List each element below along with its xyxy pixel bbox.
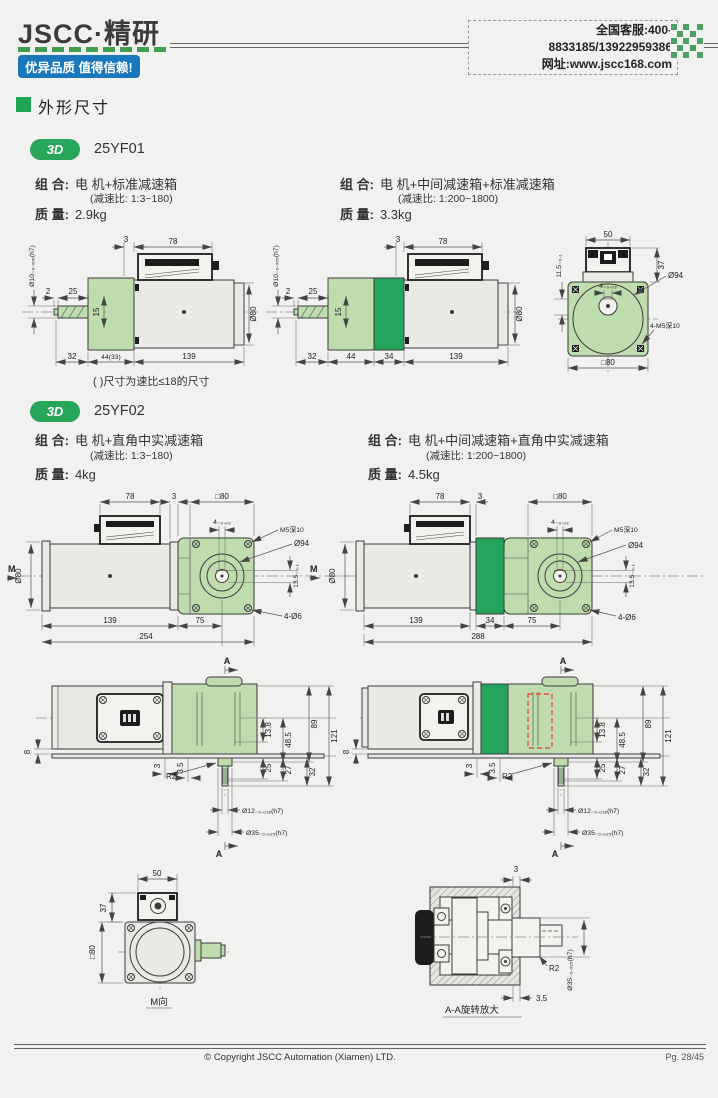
dim-label: 25: [69, 287, 78, 296]
dim-label: □80: [553, 492, 567, 501]
mass-label: 质 量:: [340, 207, 374, 222]
dim-label: 2: [286, 287, 291, 296]
dim-label: Ø10₋₀.₀₀₅(h7): [29, 245, 36, 287]
dim-label: 121: [330, 729, 339, 743]
footer-page-number: Pg. 28/45: [665, 1052, 704, 1062]
combo-value: 电 机+中间减速箱+标准减速箱: [380, 177, 555, 192]
dim-label: 25: [309, 287, 318, 296]
motor-gearbox-body: [22, 254, 258, 350]
service-hotline: 全国客服:400-8833185/13922959386: [474, 22, 672, 56]
output-boss: [218, 758, 232, 766]
dim-label: 4-Ø6: [618, 613, 636, 622]
mass-row: 质 量:2.9kg: [35, 204, 107, 223]
dim-label: 288: [471, 632, 485, 641]
website-link[interactable]: 网址:www.jscc168.com: [474, 56, 672, 73]
dim-label: R2: [166, 772, 177, 781]
dim-label: 8: [23, 749, 32, 754]
dim-label: 50: [604, 230, 613, 239]
drawing-yf01-standard-side: 3 78 2 25 Ø10₋₀.₀₀₅(h7) 15 Ø80 32 44(33)…: [8, 230, 260, 376]
combo-row: 组 合:电 机+中间减速箱+直角中实减速箱: [368, 430, 609, 449]
combo-label: 组 合:: [35, 433, 69, 448]
dim-label: □80: [215, 492, 229, 501]
dim-label: 75: [528, 616, 537, 625]
section-label: A: [224, 656, 231, 666]
mass-value: 2.9kg: [75, 207, 107, 222]
dim-label: 4-M5深10: [650, 321, 680, 330]
drawing-yf02-plan-right: M Ø80 78 3 □80 4₋₀.₀₃ M5深10 Ø94 13.5₋₀.₁…: [306, 486, 716, 652]
dim-label: 139: [182, 352, 196, 361]
mass-value: 3.3kg: [380, 207, 412, 222]
mass-label: 质 量:: [368, 467, 402, 482]
dim-label: 15: [92, 307, 101, 316]
terminal-box: [97, 694, 163, 742]
dim-label: 139: [449, 352, 463, 361]
contact-box: 全国客服:400-8833185/13922959386 网址:www.jscc…: [468, 20, 678, 75]
motor-gearbox-body: [326, 516, 706, 614]
terminal-box: [420, 694, 468, 740]
drawing-m-view: 50 37 □80 M向: [82, 864, 272, 1014]
dim-label: 121: [664, 729, 673, 743]
output-shaft: [538, 554, 582, 598]
drawing-aa-section: 3 R2 3.5 Ø35₋₀.₀₂₅(h7) A-A旋转放大: [398, 860, 628, 1035]
dim-label: Ø12₋₀.₀₁₈(h7): [578, 808, 619, 815]
model-name-yf02: 25YF02: [94, 403, 145, 419]
output-shaft: [195, 940, 225, 961]
section-label: A: [216, 849, 223, 859]
output-shaft: [540, 925, 562, 946]
dim-label: 34: [486, 616, 495, 625]
checker-icon: [670, 23, 704, 59]
dim-label: 13.8: [598, 722, 607, 738]
output-shaft: [200, 554, 244, 598]
dim-label: 4-Ø6: [284, 612, 302, 621]
dim-label: 50: [153, 869, 162, 878]
dim-label: 3: [153, 763, 162, 768]
dim-label: Ø35₋₀.₀₂₅(h7): [567, 949, 574, 990]
model-name-yf01: 25YF01: [94, 141, 145, 157]
dim-label: 37: [657, 260, 666, 269]
dim-label: 32: [308, 767, 317, 776]
output-boss: [554, 758, 568, 766]
dim-label: Ø35₋₀.₀₂₅(h7): [582, 830, 623, 837]
dim-label: 15: [334, 307, 343, 316]
ratio-row: (减速比: 1:3~180): [90, 448, 173, 463]
footer-rule: [14, 1044, 706, 1049]
dim-label: Ø80: [14, 568, 23, 584]
mounting-plate: [368, 754, 660, 758]
terminal-box: [138, 893, 177, 920]
drawing-yf01-front-view: 50 37 11.5₋₀.₁ 4₋₀.₀₃ Ø94 4-M5深10 □80: [554, 226, 716, 378]
dim-label: 3: [514, 865, 519, 874]
dim-label: 13.8: [264, 722, 273, 738]
dim-label: 254: [139, 632, 153, 641]
section-label: A: [560, 656, 567, 666]
dim-label: 139: [409, 616, 423, 625]
section-label: A: [552, 849, 559, 859]
right-angle-gearbox: [172, 684, 257, 754]
dim-label: 4₋₀.₀₃: [551, 519, 569, 526]
dim-label: M5深10: [280, 525, 304, 534]
dim-label: 32: [68, 352, 77, 361]
mass-row: 质 量:4.5kg: [368, 464, 440, 483]
drawing-yf02-side-left: A A 13.8 48.5 89 121 25 27 32 8 3 3.5 R2: [16, 656, 352, 860]
dim-label: 89: [310, 719, 319, 728]
output-boss: [512, 918, 540, 957]
dim-label: 3: [478, 492, 483, 501]
drawing-yf01-intermediate-side: 3 78 2 25 Ø10₋₀.₀₀₅(h7) 15 Ø80 32 44 34 …: [256, 230, 526, 376]
dim-label: 139: [103, 616, 117, 625]
dim-label: 34: [385, 352, 394, 361]
dim-label: M5深10: [614, 525, 638, 534]
ratio-note: ( )尺寸为速比≤18的尺寸: [93, 373, 210, 389]
dim-label: Ø80: [328, 568, 337, 584]
terminal-box: [94, 516, 160, 544]
dim-label: Ø94: [668, 271, 684, 280]
mass-label: 质 量:: [35, 207, 69, 222]
combo-value: 电 机+中间减速箱+直角中实减速箱: [408, 433, 609, 448]
badge-3d-yf01[interactable]: 3D: [30, 139, 80, 160]
dim-label: Ø94: [628, 541, 644, 550]
view-caption: M向: [150, 996, 167, 1008]
logo-underline-dashes: [18, 47, 170, 52]
mass-row: 质 量:3.3kg: [340, 204, 412, 223]
terminal-box: [138, 254, 219, 280]
section-bullet: [16, 97, 31, 112]
dim-label: 78: [169, 237, 178, 246]
view-arrow-label: M: [310, 564, 318, 574]
dim-label: 27: [284, 765, 293, 774]
gearbox-face: [118, 893, 232, 990]
gearbox-face: [554, 242, 658, 372]
combo-value: 电 机+直角中实减速箱: [75, 433, 203, 448]
dim-label: Ø12₋₀.₀₁₈(h7): [242, 808, 283, 815]
ratio-row: (减速比: 1:200~1800): [426, 448, 526, 463]
terminal-box: [404, 516, 470, 544]
mass-value: 4kg: [75, 467, 96, 482]
mass-value: 4.5kg: [408, 467, 440, 482]
drawing-yf02-plan-left: M Ø80 78 3 □80 4₋₀.₀₃ M5深10 Ø94 13.5₋₀.₁…: [6, 486, 354, 652]
dim-label: 8: [342, 749, 351, 754]
mass-row: 质 量:4kg: [35, 464, 96, 483]
intermediate-gearbox: [476, 538, 504, 614]
combo-value: 电 机+标准减速箱: [75, 177, 177, 192]
dim-label: 4₋₀.₀₃: [599, 283, 617, 290]
dim-label: 89: [644, 719, 653, 728]
brand-logo: JSCC·精研: [18, 12, 160, 51]
dim-label: Ø10₋₀.₀₀₅(h7): [273, 245, 280, 287]
dim-label: 32: [308, 352, 317, 361]
combo-label: 组 合:: [35, 177, 69, 192]
end-cap: [415, 910, 434, 965]
dim-label: Ø80: [515, 306, 524, 322]
ratio-row: (减速比: 1:200~1800): [398, 191, 498, 206]
dim-label: 25: [598, 763, 607, 772]
combo-label: 组 合:: [368, 433, 402, 448]
dim-label: 27: [618, 765, 627, 774]
section-title: 外形尺寸: [38, 94, 110, 118]
gear-disc: [452, 898, 477, 974]
terminal-box: [583, 248, 633, 282]
dim-label: 3: [124, 235, 129, 244]
dim-label: 25: [264, 763, 273, 772]
dim-label: 78: [439, 237, 448, 246]
dim-label: 32: [642, 767, 651, 776]
dim-label: 11.5₋₀.₁: [556, 254, 563, 278]
dim-label: 3.5: [536, 994, 548, 1003]
combo-row: 组 合:电 机+直角中实减速箱: [35, 430, 203, 449]
right-angle-gearbox: [508, 684, 593, 754]
dim-label: 3: [465, 763, 474, 768]
dim-label: □80: [88, 945, 97, 959]
dim-label: 13.5₋₀.₁: [629, 563, 636, 588]
terminal-box: [408, 254, 489, 280]
dim-label: 44(33): [101, 354, 121, 361]
dim-label: Ø35₋₀.₀₂₅(h7): [246, 830, 287, 837]
intermediate-gearbox: [481, 684, 508, 754]
dim-label: □80: [601, 358, 615, 367]
dim-label: R2: [549, 964, 560, 973]
dim-label: 13.5₋₀.₁: [293, 563, 300, 588]
dim-label: 48.5: [618, 732, 627, 748]
mass-label: 质 量:: [35, 467, 69, 482]
dim-label: 78: [126, 492, 135, 501]
motor-gearbox-body: [266, 254, 522, 350]
dim-label: 2: [46, 287, 51, 296]
dim-label: 4₋₀.₀₃: [213, 519, 231, 526]
combo-label: 组 合:: [340, 177, 374, 192]
footer-copyright: © Copyright JSCC Automation (Xiamen) LTD…: [90, 1052, 510, 1063]
dim-label: 78: [436, 492, 445, 501]
intermediate-gearbox: [374, 278, 404, 350]
dim-label: 3.5: [488, 762, 497, 774]
dim-label: 75: [196, 616, 205, 625]
dim-label: 37: [99, 903, 108, 912]
dim-label: 3: [172, 492, 177, 501]
badge-3d-yf02[interactable]: 3D: [30, 401, 80, 422]
dim-label: R2: [502, 772, 513, 781]
slogan-badge: 优异品质 值得信赖!: [18, 55, 140, 78]
dim-label: 48.5: [284, 732, 293, 748]
dim-label: 44: [347, 352, 356, 361]
dim-label: 3: [396, 235, 401, 244]
drawing-yf02-side-right: A A 13.8 48.5 89 121 25 27 32 8 3 3.5 R2: [346, 656, 712, 860]
view-caption: A-A旋转放大: [445, 1004, 499, 1016]
